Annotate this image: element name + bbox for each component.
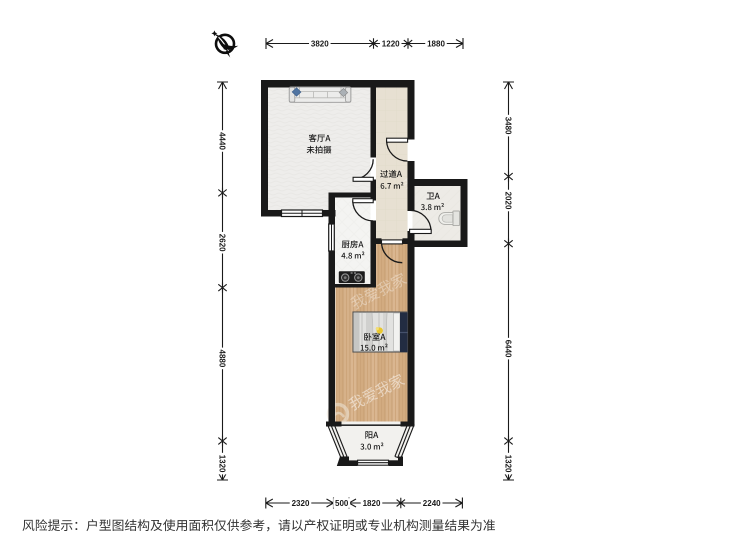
- svg-text:4440: 4440: [218, 132, 227, 150]
- svg-text:1220: 1220: [382, 40, 400, 49]
- svg-text:2240: 2240: [423, 499, 441, 508]
- svg-text:3820: 3820: [311, 40, 329, 49]
- svg-text:1320: 1320: [218, 455, 227, 473]
- svg-text:4880: 4880: [218, 350, 227, 368]
- svg-text:2320: 2320: [292, 499, 310, 508]
- svg-text:2020: 2020: [504, 192, 513, 210]
- svg-text:1880: 1880: [427, 40, 445, 49]
- svg-text:1320: 1320: [504, 455, 513, 473]
- svg-text:6440: 6440: [504, 340, 513, 358]
- svg-text:2620: 2620: [218, 234, 227, 252]
- svg-text:500: 500: [335, 499, 349, 508]
- svg-text:1820: 1820: [363, 499, 381, 508]
- svg-text:3480: 3480: [504, 117, 513, 135]
